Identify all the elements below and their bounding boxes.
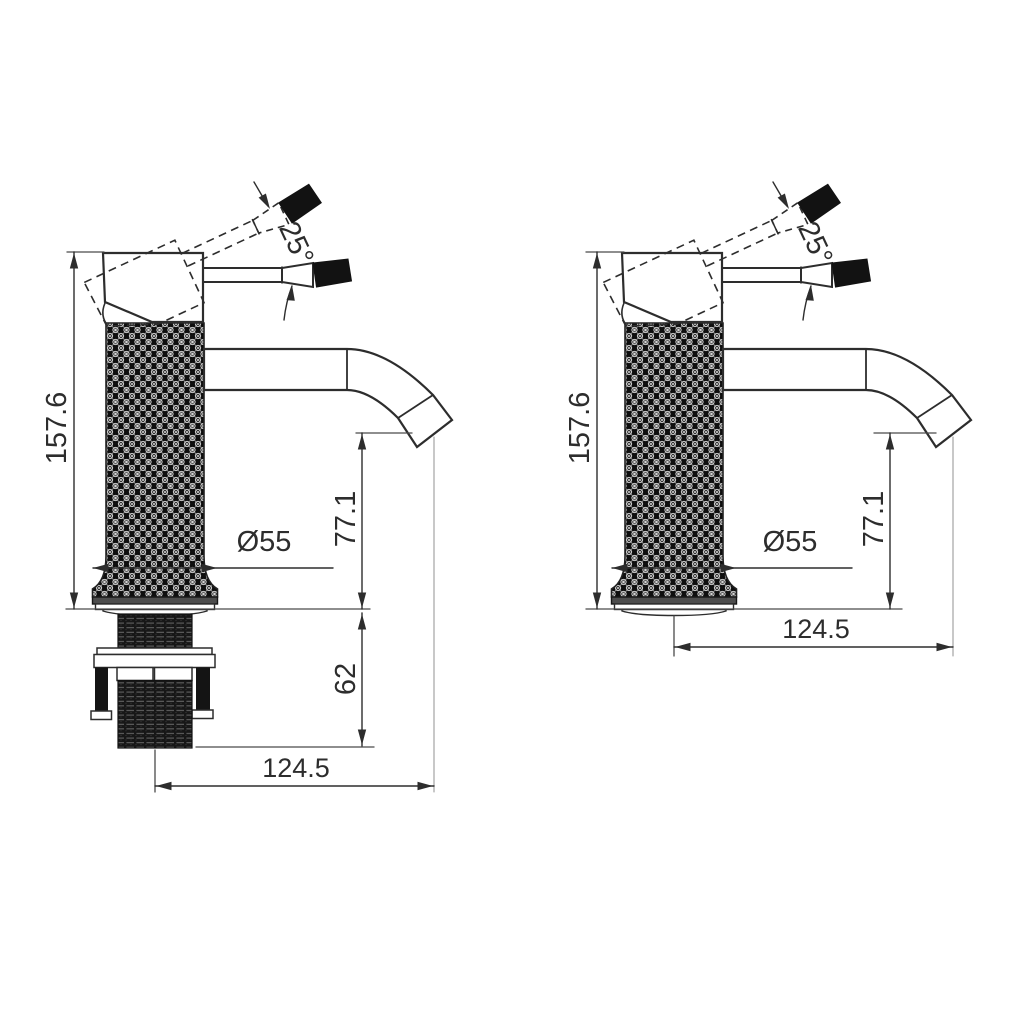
stud-nut-right bbox=[192, 710, 213, 719]
mounting-washer-plate-1 bbox=[97, 648, 212, 655]
fixing-stud-right bbox=[196, 668, 210, 711]
dim-total-height-right: 157.6 bbox=[564, 252, 624, 609]
drawing-page: 157.6 25° Ø55 77.1 bbox=[0, 0, 1024, 1024]
dim-label-under-counter-left: 62 bbox=[330, 663, 362, 695]
dim-label-total-height-right: 157.6 bbox=[564, 392, 596, 465]
dim-label-spout-height-right: 77.1 bbox=[858, 491, 890, 547]
mounting-washer-plate-2 bbox=[94, 655, 215, 668]
under-counter-hardware bbox=[91, 614, 215, 748]
dim-total-height-left: 157.6 bbox=[41, 252, 104, 609]
fixing-block-right bbox=[155, 668, 193, 681]
dim-label-base-diameter-left: Ø55 bbox=[237, 526, 292, 558]
threaded-shank-lower bbox=[118, 681, 192, 749]
dim-label-base-diameter-right: Ø55 bbox=[763, 526, 818, 558]
dim-spout-height-right: 77.1 bbox=[858, 433, 936, 609]
dim-label-spout-reach-left: 124.5 bbox=[262, 753, 330, 783]
dim-label-spout-reach-right: 124.5 bbox=[782, 614, 850, 644]
dim-label-spout-height-left: 77.1 bbox=[330, 491, 362, 547]
fixing-block-left bbox=[117, 668, 153, 681]
threaded-shank-upper bbox=[118, 614, 192, 648]
dim-under-counter-left: 62 bbox=[196, 613, 374, 747]
fixing-stud-left bbox=[95, 668, 108, 712]
dim-label-total-height-left: 157.6 bbox=[41, 392, 73, 465]
stud-nut-left bbox=[91, 711, 112, 720]
faucet-technical-drawing: 157.6 25° Ø55 77.1 bbox=[0, 0, 1024, 1024]
dim-spout-height-left: 77.1 bbox=[330, 433, 412, 609]
